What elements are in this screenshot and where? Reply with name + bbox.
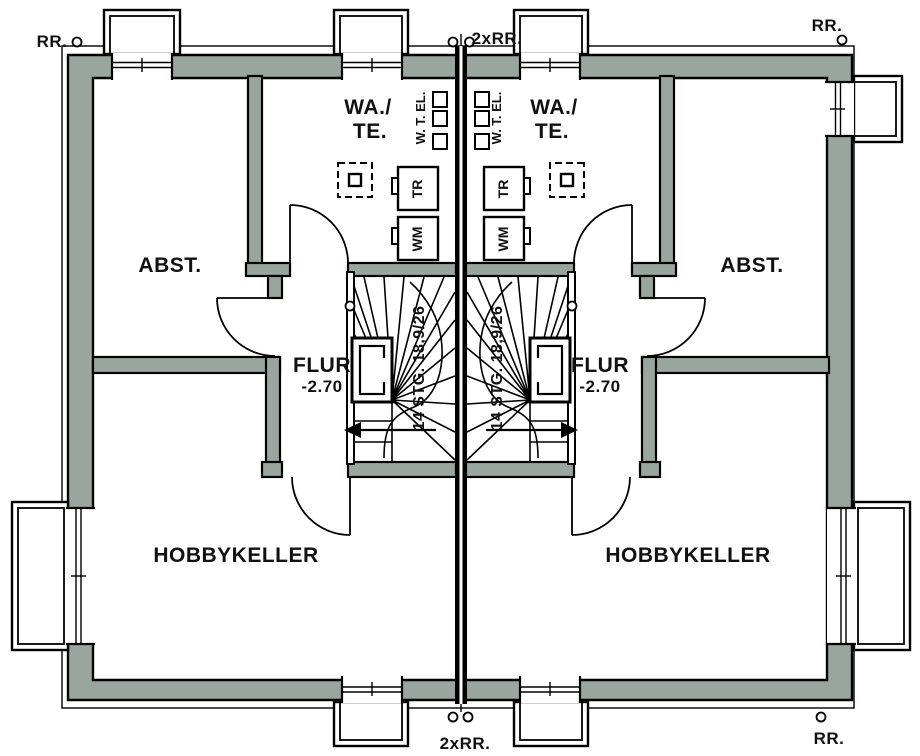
label-rr-top-center: 2xRR. [472,29,523,48]
label-rr-bottom-right: RR. [814,729,845,748]
rr-pipe-top-left [73,38,82,47]
label-abst-right: ABST. [720,254,783,277]
stair-post [346,302,355,311]
floor-plan-page: RR. 2xRR. RR. 2xRR. RR. ABST. WA./ TE. F… [0,0,920,756]
staircase [344,277,455,462]
utility-connection-boxes [433,92,447,149]
rr-pipe-bottom-center-2 [464,713,473,722]
window-storage-top-left [104,10,180,80]
label-flur-level-right: -2.70 [579,377,620,396]
label-dryer-right: TR [495,180,511,199]
floor-drain-symbol [338,163,372,197]
window-laundry-top [334,10,408,80]
label-rr-bottom-center: 2xRR. [440,734,491,753]
label-flur-level-left: -2.70 [301,377,342,396]
label-flur-right: FLUR [571,354,629,377]
door-storage [217,298,275,356]
party-wall [455,46,467,704]
label-te-left: TE. [353,120,387,143]
rr-pipe-top-center-1 [449,38,458,47]
rr-pipe-bottom-right [817,713,826,722]
label-stair-right: 14 STG. 18,9/26 [489,306,506,431]
door-hobby [292,477,350,535]
window-hobby-bottom [334,676,408,746]
label-utilities-right: W. T. EL. [489,92,504,145]
label-abst-left: ABST. [138,254,201,277]
label-stair-left: 14 STG. 18,9/26 [411,306,428,431]
label-washer-right: WM [495,227,511,252]
label-washer-left: WM [409,227,425,252]
label-hobby-left: HOBBYKELLER [153,544,318,567]
label-rr-top-left: RR. [37,32,68,51]
window-hobby-side [12,502,95,650]
label-wa-left: WA./ [344,96,392,119]
label-te-right: TE. [535,120,569,143]
label-hobby-right: HOBBYKELLER [605,544,770,567]
label-wa-right: WA./ [530,96,578,119]
rr-pipe-top-right [838,36,847,45]
label-flur-left: FLUR [293,354,351,377]
door-laundry [290,205,348,263]
window-storage-side-right [825,76,902,142]
floor-plan-drawing: RR. 2xRR. RR. 2xRR. RR. ABST. WA./ TE. F… [0,0,920,756]
label-dryer-left: TR [409,180,425,199]
rr-pipe-bottom-center-1 [449,713,458,722]
label-utilities-left: W. T. EL. [413,92,428,145]
label-rr-top-right: RR. [812,16,843,35]
